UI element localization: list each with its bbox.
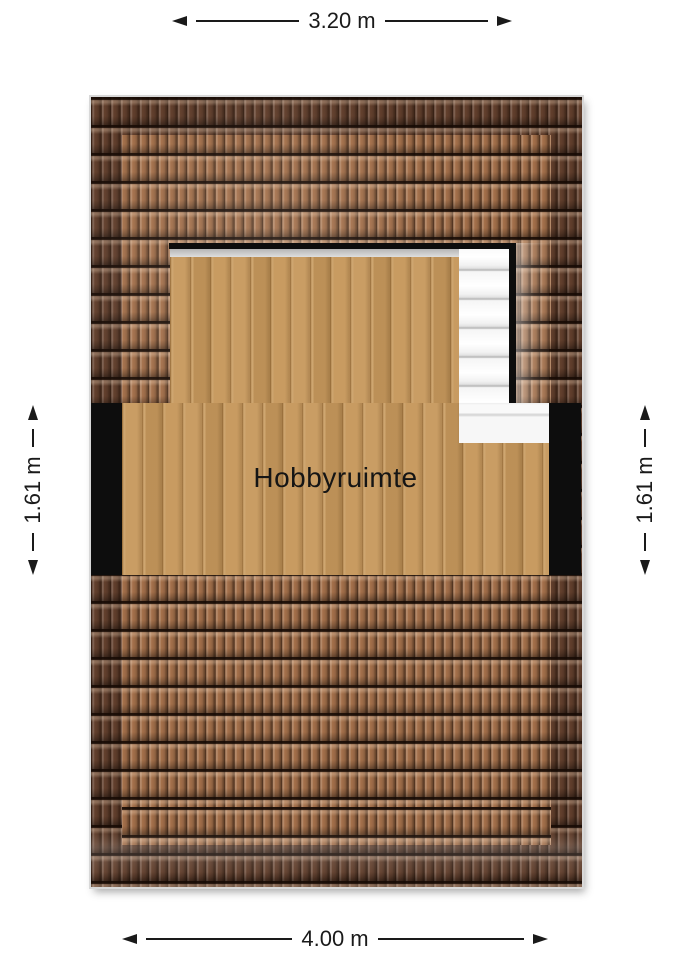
- dimension-line: [146, 938, 292, 940]
- arrow-right-icon: [533, 934, 548, 944]
- dimension-right-label: 1.61 m: [634, 456, 656, 523]
- arrow-right-icon: [497, 16, 512, 26]
- dimension-left-label: 1.61 m: [22, 456, 44, 523]
- arrow-down-icon: [640, 560, 650, 575]
- staircase-landing: [459, 403, 549, 443]
- dimension-bottom-label: 4.00 m: [301, 928, 368, 950]
- dimension-top-label: 3.20 m: [308, 10, 375, 32]
- dimension-line: [378, 938, 524, 940]
- dimension-right: 1.61 m: [633, 405, 657, 575]
- staircase: [459, 249, 509, 403]
- dimension-bottom: 4.00 m: [122, 927, 548, 951]
- room-name-label: Hobbyruimte: [122, 462, 549, 494]
- dimension-line: [644, 429, 646, 447]
- arrow-left-icon: [172, 16, 187, 26]
- wall-right: [549, 403, 581, 575]
- dimension-top: 3.20 m: [172, 9, 512, 33]
- arrow-up-icon: [28, 405, 38, 420]
- dimension-line: [385, 20, 488, 22]
- wall-ledge: [170, 249, 459, 257]
- dimension-line: [644, 533, 646, 551]
- floor-plan-canvas: Hobbyruimte 3.20 m 4.00 m 1.61 m 1.61 m: [0, 0, 679, 960]
- dimension-line: [32, 429, 34, 447]
- dimension-line: [32, 533, 34, 551]
- dimension-line: [196, 20, 299, 22]
- wall-staircase-side: [509, 243, 516, 403]
- arrow-up-icon: [640, 405, 650, 420]
- arrow-left-icon: [122, 934, 137, 944]
- dimension-left: 1.61 m: [21, 405, 45, 575]
- arrow-down-icon: [28, 560, 38, 575]
- hobby-room-floor-upper: [170, 257, 459, 403]
- wall-left: [91, 403, 122, 575]
